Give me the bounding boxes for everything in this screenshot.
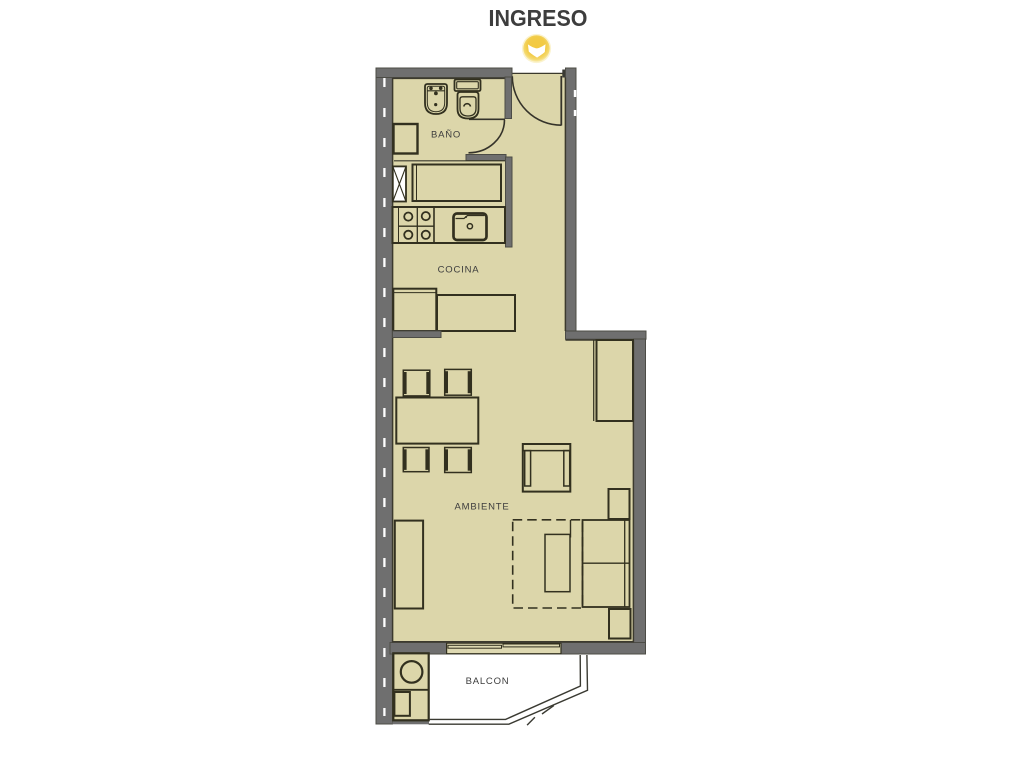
- svg-text:COCINA: COCINA: [438, 265, 480, 276]
- svg-text:AMBIENTE: AMBIENTE: [455, 502, 510, 513]
- svg-text:INGRESO: INGRESO: [489, 5, 588, 31]
- svg-text:BAÑO: BAÑO: [431, 130, 461, 141]
- svg-text:BALCON: BALCON: [466, 676, 510, 687]
